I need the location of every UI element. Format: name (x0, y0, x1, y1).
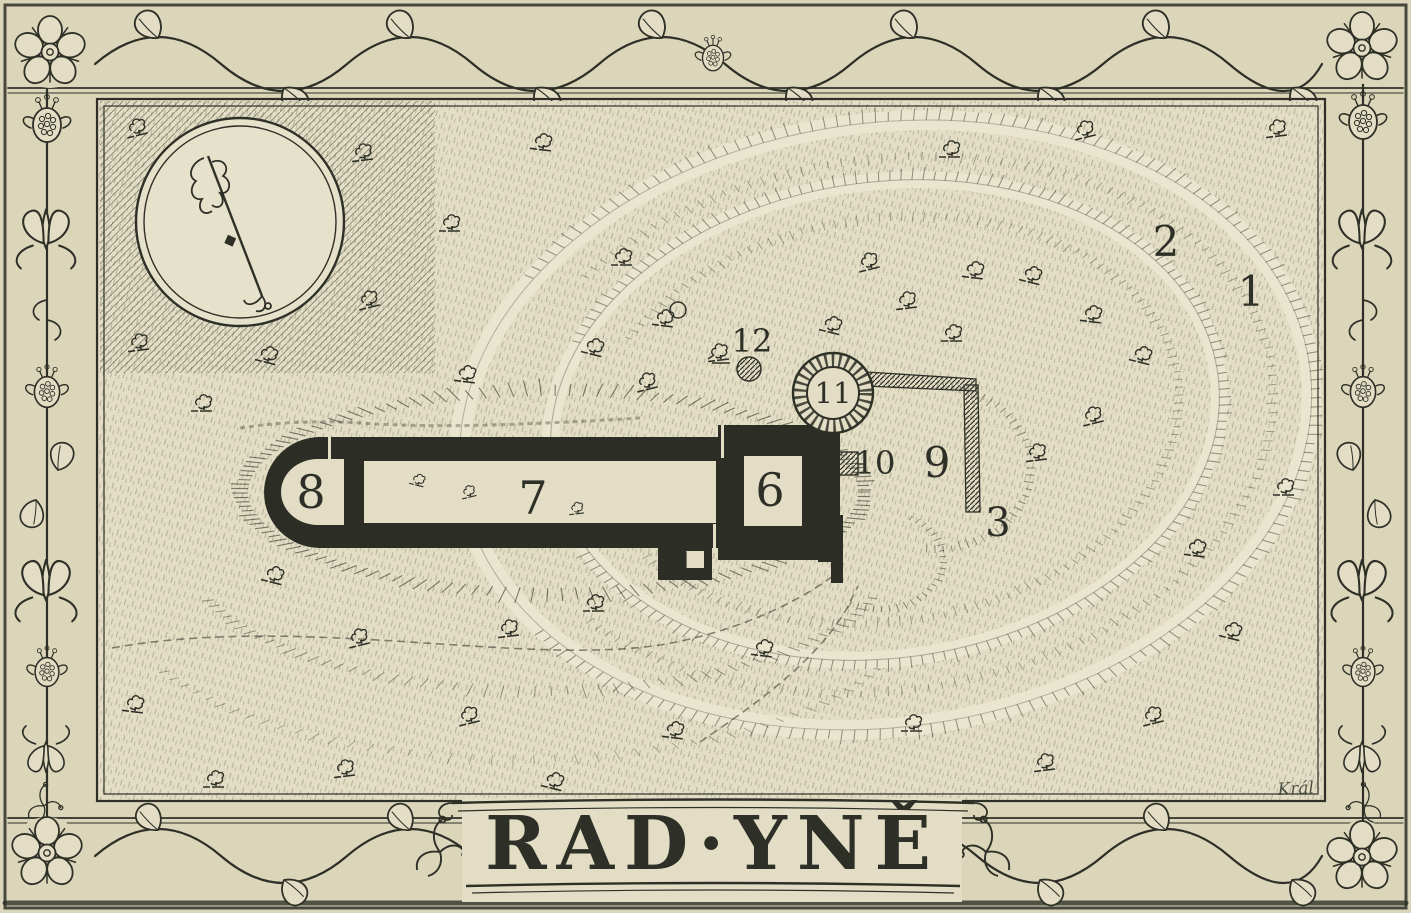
map-label-6: 6 (755, 463, 784, 517)
annex-chamber (686, 551, 704, 568)
wall-joint (328, 437, 331, 461)
map-label-10: 10 (855, 444, 896, 482)
engraver-signature: Král (1276, 778, 1314, 800)
title-banner: RAD·YNĚ (417, 798, 1009, 902)
map-label-12: 12 (732, 322, 773, 360)
gate-wall (818, 505, 831, 562)
engraved-castle-map: 1236789101112 Král RAD·YNĚ (0, 0, 1411, 913)
map-label-11: 11 (815, 376, 852, 410)
map-label-9: 9 (924, 438, 951, 487)
gate-wall (831, 515, 843, 583)
map-label-1: 1 (1238, 267, 1265, 316)
wall-joint (713, 524, 716, 549)
wall-joint (721, 425, 724, 458)
map-canvas: 1236789101112 Král RAD·YNĚ (0, 0, 1411, 913)
map-title: RAD·YNĚ (485, 799, 941, 887)
north-arrow-icon (136, 118, 344, 326)
map-label-8: 8 (296, 465, 325, 519)
map-panel: 1236789101112 Král (99, 66, 1352, 801)
annex-stair (663, 552, 686, 576)
map-label-3: 3 (985, 500, 1010, 546)
map-label-2: 2 (1153, 217, 1180, 266)
map-label-7: 7 (518, 471, 547, 525)
